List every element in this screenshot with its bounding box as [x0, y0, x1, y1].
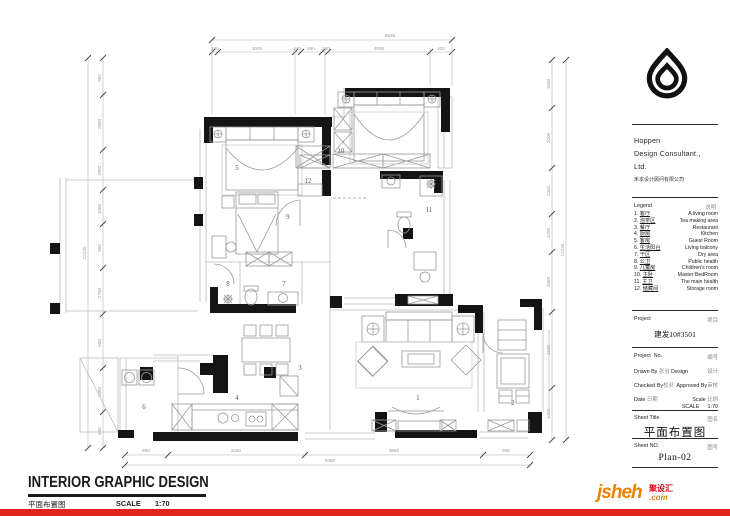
svg-text:240: 240 — [293, 46, 301, 51]
hoppen-logo-icon — [644, 48, 690, 100]
scale-label: SCALE — [116, 499, 141, 508]
legend-item: 12. 储藏间Storage room — [634, 286, 718, 293]
sheet-no-row: Sheet NO.图号 — [634, 443, 718, 451]
company-name-cn: 禾本设计顾问有限公司 — [634, 176, 684, 183]
jsheh-logo-text: jsheh — [597, 482, 642, 504]
project-row: Project项目 — [634, 316, 718, 324]
legend-item: 6. 生活阳台Living balcony — [634, 245, 718, 252]
svg-text:1060: 1060 — [97, 203, 102, 214]
bottom-red-bar — [0, 509, 730, 516]
svg-text:3260: 3260 — [231, 448, 242, 453]
jsheh-logo-com: .com — [649, 493, 668, 502]
svg-text:240: 240 — [322, 46, 330, 51]
svg-text:3045: 3045 — [252, 46, 263, 51]
drawn-by-row: Drawn By 张治 Design 设计 — [634, 367, 718, 375]
room-label-kitchen: 4 — [235, 395, 239, 402]
room-label-master: 10 — [338, 148, 345, 155]
legend-item: 5. 客房Guest Room — [634, 238, 718, 245]
legend-title: Legend — [634, 203, 652, 211]
legend-item: 10. 主卧Master BedRoom — [634, 272, 718, 279]
svg-text:2080: 2080 — [546, 276, 551, 287]
svg-text:900: 900 — [97, 339, 102, 347]
svg-text:2600: 2600 — [546, 344, 551, 355]
legend-title-cn: 说明 — [705, 203, 716, 211]
room-label-guest: 5 — [235, 165, 239, 172]
svg-text:9635: 9635 — [385, 33, 396, 38]
svg-text:1000: 1000 — [546, 408, 551, 419]
floor-plan: 9635 240 3045 240 650 240 4000 820 890 3… — [0, 0, 600, 475]
svg-text:650: 650 — [307, 46, 315, 51]
svg-text:820: 820 — [437, 46, 445, 51]
svg-text:2850: 2850 — [97, 118, 102, 129]
scale-value: 1:70 — [155, 499, 170, 508]
company-name-3: Ltd. — [634, 162, 647, 171]
legend-item: 2. 泡茶区Tea making area — [634, 218, 718, 225]
room-label-dry: 7 — [282, 281, 286, 288]
svg-text:4000: 4000 — [374, 46, 385, 51]
drawing-sheet: 9635 240 3045 240 650 240 4000 820 890 3… — [0, 0, 730, 516]
svg-text:12230: 12230 — [82, 246, 87, 259]
room-label-living: 1 — [416, 395, 419, 402]
company-name-1: Hoppen — [634, 136, 660, 145]
dimension-left: 950 2850 1950 1060 950 2750 900 1460 540… — [82, 55, 106, 451]
title-underline — [28, 494, 206, 497]
svg-text:1950: 1950 — [97, 165, 102, 176]
title-block: Hoppen Design Consultant., Ltd. 禾本设计顾问有限… — [630, 40, 720, 475]
svg-text:9480: 9480 — [325, 458, 336, 463]
legend-header: Legend 说明 — [634, 203, 716, 211]
company-name-2: Design Consultant., — [634, 149, 701, 158]
room-label-storage: 12 — [305, 178, 312, 185]
svg-text:890: 890 — [142, 448, 150, 453]
svg-text:2750: 2750 — [97, 287, 102, 298]
room-label-balcony: 6 — [142, 404, 146, 411]
sheet-title-row: Sheet Title图名 — [634, 415, 718, 423]
svg-text:2000: 2000 — [546, 132, 551, 143]
legend-item: 1. 客厅A living room — [634, 211, 718, 218]
svg-text:950: 950 — [97, 244, 102, 252]
sheet-number: Plan-02 — [630, 453, 720, 463]
legend-item: 7. 干区Dry area — [634, 252, 718, 259]
dimension-right: 1650 2000 1300 1280 2080 2600 1000 12230 — [546, 57, 569, 443]
svg-text:1280: 1280 — [546, 227, 551, 238]
room-label-tea: 2 — [511, 400, 515, 407]
svg-text:12230: 12230 — [560, 243, 565, 256]
drawing-title: INTERIOR GRAPHIC DESIGN — [28, 474, 209, 492]
svg-text:540: 540 — [97, 427, 102, 435]
project-no-row: Project No. 编号 — [634, 353, 718, 361]
svg-text:935: 935 — [502, 448, 510, 453]
room-label-children: 9 — [286, 214, 290, 221]
checked-row: Checked By校对 Approved By审核 — [634, 381, 718, 389]
windows-and-envelope — [60, 88, 549, 439]
svg-text:3860: 3860 — [389, 448, 400, 453]
svg-text:1650: 1650 — [546, 78, 551, 89]
dimension-bottom: 890 3260 3860 935 9480 — [122, 448, 533, 468]
room-label-masterbath: 11 — [426, 207, 433, 214]
project-name: 建发10#3501 — [630, 329, 720, 340]
svg-text:950: 950 — [97, 74, 102, 82]
legend-list: 1. 客厅A living room 2. 泡茶区Tea making area… — [634, 211, 718, 293]
dimension-top: 9635 240 3045 240 650 240 4000 820 — [209, 33, 455, 115]
svg-text:1300: 1300 — [546, 185, 551, 196]
room-label-dining: 3 — [298, 365, 302, 372]
jsheh-logo: jsheh 聚设汇 .com — [597, 482, 717, 508]
legend-item: 11. 主卫The main health — [634, 279, 718, 286]
room-label-publicbath: 8 — [226, 281, 230, 288]
svg-text:240: 240 — [211, 46, 219, 51]
date-scale-row: Date 日期 Scale 比例 — [634, 395, 718, 403]
